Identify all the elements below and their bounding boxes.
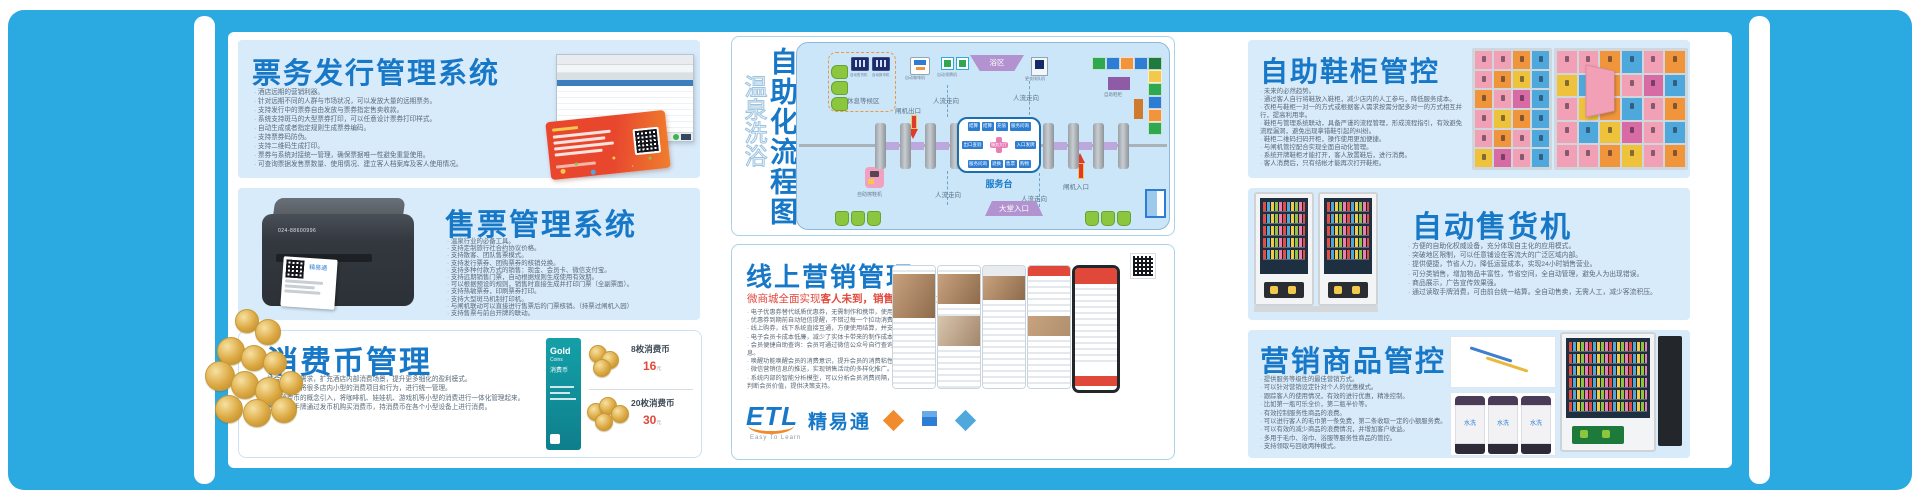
service-chip: 退换 [991,160,1003,169]
bullet-item: 客人消费后，只有结帐才能再次打开鞋柜。 [1260,160,1468,168]
people-flow-label: 人流走向 [935,189,961,199]
shoe-cabinet-icon [1108,77,1130,90]
bullet-item: 方便的自助化权威设备，充分体现自主化的应用模式。 [1408,242,1680,251]
bullet-item: 比如第一瓶可乐全价，第二瓶半价等。 [1260,401,1456,409]
gold-coins-card: Gold Coins 消费币 [546,338,581,450]
poster-root: 票务发行管理系统 酒店远期的营销利器。针对远期不同的人群与市场状况，可以发放大量… [0,0,1920,500]
service-chip: 结算 [968,122,980,131]
panel-qr-code [1130,253,1156,279]
diamond-icon [955,410,976,431]
toothbrush-kit-photo [1450,336,1556,388]
massage-chairs [831,65,848,111]
panel-coins: 消费币管理 结合消费的需求，扩充酒店内部消费场景，提升更多细化的盈利模式。利用消… [238,330,702,458]
floorplan: 自动售货机 自动换币机 休息等候区 自动咖啡机 自动领牌机 浴区 更衣排队机 [796,42,1170,230]
queue-machine-icon [1031,57,1048,76]
towel-roll: 水洗 [1488,396,1518,452]
locker-photo [1472,48,1552,170]
bullet-item: 未来的必然趋势。 [1260,88,1468,96]
machine-caption: 自动售货机 [850,73,868,78]
gate-entry-label: 闸机入口 [1063,181,1089,191]
etl-tagline: Easy To Learn [750,435,801,441]
bullet-item: 支持发行中的票券自由发放与票券指定售卖收款。 [254,106,554,115]
bullet-item: 鞋柜与管理系统联动，具备严谨的流程管理，形成流程指引，有效避免流程漏洞，避免出现… [1260,120,1468,136]
waiting-area-box: 自动售货机 自动换币机 休息等候区 [828,52,896,112]
app-screenshot [937,265,981,389]
open-locker-door [1586,64,1615,117]
turnstile-pillar [1093,123,1104,169]
machine-caption: 自动咖啡机 [905,75,925,81]
coin-changer-icon [872,57,890,71]
turnstile-pillar [1118,123,1129,169]
gate-exit-arrow [911,115,917,129]
side-cabinet [1658,336,1682,446]
vending-machines-photo [1254,192,1382,316]
card-brand: Gold [550,346,571,356]
ticket-qr-code [632,127,661,156]
diamond-icon [883,410,904,431]
bullet-item: 支持大型斑马机制打印机。 [447,296,715,303]
dispense-slot [1328,282,1368,298]
panel-ticketing-bullets: 酒店远期的营销利器。针对远期不同的人群与市场状况，可以发放大量的远期票务。支持发… [254,88,554,169]
panel-shoe-lockers-title: 自助鞋柜管控 [1260,50,1440,90]
bullet-item: 提供便捷，节省人力，降低运营成本，实现24小时销售营业。 [1408,260,1680,269]
etl-logo-swoosh [748,417,794,434]
bath-area: 浴区 [970,55,1024,71]
bullet-item: 针对远期不同的人群与市场状况，可以发放大量的远期票务。 [254,97,554,106]
people-flow-label: 人流走向 [1013,92,1039,102]
panel-goods-title: 营销商品管控 [1260,338,1446,380]
bullet-item: 支持领取与回收两种模式。 [1260,443,1456,451]
bullet-item: 有效控制服务性商品的浪费。 [1260,410,1456,418]
turnstile-pillar [900,123,911,169]
qr-pattern [635,129,659,153]
bullet-item: 可以针对营销设定针对个人的优惠模式。 [1260,384,1456,392]
bullet-item: 可分类销售，增加物品丰富性，节省空间，全自动管理，避免人为出现错误。 [1408,270,1680,279]
bullet-item: 衣柜与鞋柜一对一的方式或根据客人需求按需分配多对一的方式相互并行，提高利用率。 [1260,104,1468,120]
bullet-item: 可查询票据发售票数量、使用情况、建立客人档案库及客人使用情况。 [254,160,554,169]
door-icon [1145,189,1166,218]
bullet-item: 支持热敏票券，印刷票券打印。 [447,288,715,295]
printer-photo: 024-88600996 精易通 [248,192,428,316]
app-screenshot [1027,265,1071,389]
table-header [557,73,693,80]
card-logo-box [550,434,560,444]
turnstile-pillar [925,123,936,169]
dispense-slot [1572,426,1624,444]
turnstile-pillar [1068,123,1079,169]
divider [589,389,693,390]
bullet-item: 商品展示，广告宣传效果强。 [1408,279,1680,288]
service-chip: 购物 [1019,160,1031,169]
bullet-item: 通过读取手牌消费，可由前台统一结算。全自动售卖，无需人工，减少客流积压。 [1408,288,1680,297]
ticket-text-bar [556,161,596,168]
bullet-item: 可以有效的减少商品的浪费情况，并增加客户收益。 [1260,426,1456,434]
etl-logo-block: ETL 精易通 Easy To Learn [746,401,1166,453]
bullet-item: 通过客人自行将鞋放入鞋柜，减少店内的人工参与，降低服务成本。 [1260,96,1468,104]
panel-vending: 自动售货机 方便的自助化权威设备，充分体现自主化的应用模式。突破地区限制，可以任… [1248,188,1690,320]
panel-flowchart: 温泉洗浴 自助化流程图 自动售货机 自动换币机 休息等候区 自动咖啡机 自动领牌… [731,36,1175,236]
vending-machine-photo [1560,332,1684,454]
claim-machine-label: 自动领牌机 [937,72,957,78]
card-subtitle: 消费币 [550,365,568,374]
coin-item-label: 20枚消费币 [631,397,674,409]
waiting-area-label: 休息等候区 [847,95,880,105]
people-flow-label: 人流走向 [933,95,959,105]
bullet-item: 票券与系统对接统一管理，确保票据唯一性避免重复使用。 [254,151,554,160]
panel-online-marketing: 线上营销管理 微商城全面实现客人未到，销售先行的理念 电子优惠券替代纸质优惠券，… [731,244,1175,460]
bullet-item: 支持售票与前台开牌的联动。 [447,310,715,317]
bullet-item: 支持二维码生成打印。 [254,142,554,151]
service-chip: 服务问询 [968,160,989,169]
panel-goods: 营销商品管控 提供服务等级性的最佳营销方式。可以针对营销设定针对个人的优惠模式。… [1248,330,1690,458]
service-chip: 结算 [982,122,994,131]
bullet-item: 支持散客、团队售票模式。 [447,252,715,259]
bullet-item: 支持票券码防伪。 [254,133,554,142]
panel-goods-bullets: 提供服务等级性的最佳营销方式。可以针对营销设定针对个人的优惠模式。跟踪客人的使用… [1260,376,1456,452]
window-titlebar [557,55,693,65]
right-pinstripe [1749,16,1770,484]
machine-base [1254,306,1378,312]
sofa-group [1085,211,1131,226]
bullet-item: 支持多种付款方式的销售：现金、会员卡、微信支付宝。 [447,267,715,274]
cube-icon [922,411,937,426]
towel-rolls-photo: 水洗 水洗 水洗 [1450,392,1556,456]
bullet-item: 与闸机管控配合实现全面自动化管理。 [1260,144,1468,152]
bullet-item: 系统支持斑马的大型票券打印，可以任意设计票券打印样式。 [254,115,554,124]
sofa-group [835,211,881,226]
claim-machine-icon [956,57,969,70]
status-dark-chip [681,134,691,140]
bullet-item: 突破地区限制，可以任意铺设在客流大的广泛区域内部。 [1408,251,1680,260]
shoe-cabinet-label: 自助鞋柜 [1104,92,1122,98]
locker-photo-open-door [1554,48,1688,170]
status-green-dot [673,134,679,140]
panel-shoe-lockers-bullets: 未来的必然趋势。通过客人自行将鞋放入鞋柜，减少店内的人工参与，降低服务成本。衣柜… [1260,88,1468,168]
bullet-item: 跟踪客人的使用情况，有效的进行优惠，精准控制。 [1260,393,1456,401]
ticket-brand-text: 精易通 [309,262,328,272]
machine-caption: 自动换币机 [872,73,890,78]
gate-exit-label: 闸机出口 [895,105,921,115]
turnstile-pillar [1043,123,1054,169]
orange-cabinet-icon [1134,99,1143,119]
turnstile-pillar [875,123,886,169]
bullet-item: 酒店远期的营销利器。 [254,88,554,97]
service-desk-box: 结算 结算 充值 服务问询 出口查验 服务大厅 入口发牌 服务问询 退换 售票 … [957,117,1041,173]
towel-roll: 水洗 [1455,396,1485,452]
ticket-heading-bar [552,126,578,132]
service-desk-label: 服务台 [965,177,1033,190]
service-chip: 入口发牌 [1015,141,1036,150]
qr-pattern [1133,256,1153,276]
app-screenshot [892,265,936,389]
panel-ticketing: 票务发行管理系统 酒店远期的营销利器。针对远期不同的人群与市场状况，可以发放大量… [238,40,700,178]
window-toolbar [557,65,693,73]
coin-price-list: 8枚消费币 16元 20枚消费币 30元 [587,337,697,451]
dispense-slot [1264,282,1304,298]
coin-item-label: 8枚消费币 [631,343,670,355]
bullet-item: 多用于毛巾、浴巾、浴服等服务性商品的管控。 [1260,435,1456,443]
vending-machine [1560,332,1656,452]
vending-machine [1318,192,1378,306]
bullet-item: 鞋柜二维码扫码开柜，操作使用更加便捷。 [1260,136,1468,144]
card-brand2: Coins [550,357,563,363]
panel-shoe-lockers: 自助鞋柜管控 未来的必然趋势。通过客人自行将鞋放入鞋柜，减少店内的人工参与，降低… [1248,40,1690,178]
coin-item-price: 30元 [643,413,661,427]
qr-pattern [285,259,304,278]
service-chip: 出口查验 [962,141,983,150]
shoe-polisher-label: 自助擦鞋机 [857,191,882,198]
etl-brand-name: 精易通 [808,407,871,434]
service-chip: 服务问询 [1010,122,1031,131]
panel-vending-bullets: 方便的自助化权威设备，充分体现自主化的应用模式。突破地区限制，可以任意铺设在客流… [1408,242,1680,297]
confetti-dots [560,169,565,174]
ticket-qr [285,259,304,278]
coffee-machine-icon [910,57,930,75]
bullet-item: 自动生成或者指定规则生成票券编码。 [254,124,554,133]
panel-vending-title: 自动售货机 [1412,202,1572,246]
bullet-item: 支持发行票券、团购票券的核销兑换。 [447,260,715,267]
gold-coins-photo [197,299,347,429]
panel-ticketing-title: 票务发行管理系统 [252,50,500,92]
bullet-item: 与闸机联动可以直接进行售票后的门票核销。（持票过闸机入园） [447,303,715,310]
ticket-line [284,289,320,295]
phone-screenshot [1072,265,1120,393]
claim-machine-icon [941,57,954,70]
vending-machine [1254,192,1314,306]
queue-machine-label: 更衣排队机 [1025,76,1045,82]
service-chip: 售票 [1005,160,1017,169]
panel-ticket-sales-bullets: 温泉行业的必备工具。支持定制旅行社合约协议价格。支持散客、团队售票模式。支持发行… [447,238,715,317]
vending-machine-icon [851,57,869,71]
app-screenshot [982,265,1026,389]
panel-online-title: 线上营销管理 [746,257,914,294]
bullet-item: 系统开牌鞋柜才能打开，客人放置鞋后，进行消费。 [1260,152,1468,160]
orange-ticket-card [545,110,670,180]
coin-item-price: 16元 [643,359,661,373]
towel-roll: 水洗 [1521,396,1551,452]
service-hall-cross: 服务大厅 [990,137,1008,153]
shoe-polisher-icon [865,167,884,188]
lobby-entrance: 大堂入口 [985,201,1043,216]
printer-phone-number: 024-88600996 [278,228,316,234]
service-chip: 充值 [996,122,1008,131]
